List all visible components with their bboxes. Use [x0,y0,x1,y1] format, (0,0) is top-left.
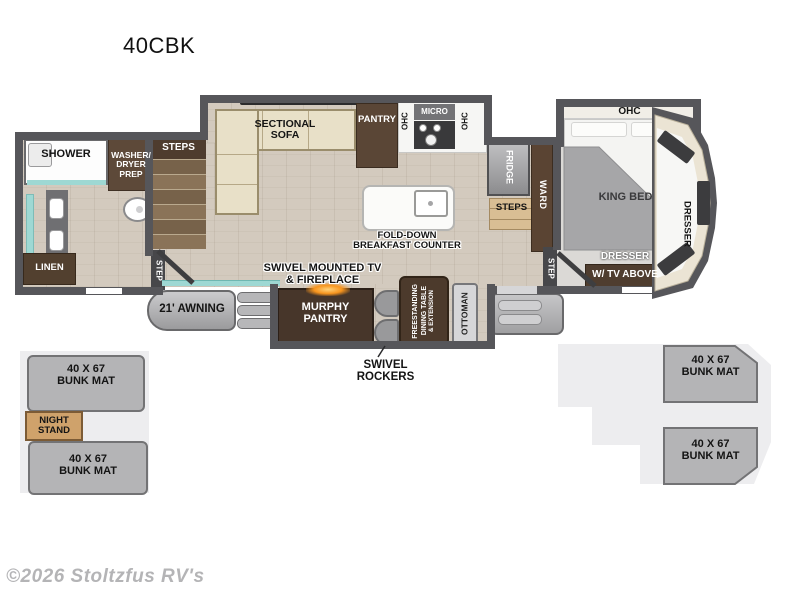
washer-dryer-label: WASHER/DRYERPREP [108,145,154,185]
bunk-mat-label: 40 X 67BUNK MAT [27,362,145,390]
breakfast-counter-label: FOLD-DOWNBREAKFAST COUNTER [337,229,477,253]
fridge-label: FRIDGE [487,139,530,196]
bunk-mat-label: 40 X 67BUNK MAT [664,353,757,381]
cap-dresser-label: DRESSER [679,193,694,255]
ottoman-label: OTTOMAN [452,283,478,345]
dresser-tv-label-line1: DRESSER [583,252,667,263]
linen-label: LINEN [23,258,76,278]
bunk-mat-label: 40 X 67BUNK MAT [28,452,148,480]
ohc-right-label: OHC [459,104,473,138]
rockers-pointer-line [378,346,385,357]
staircase-label: STEPS [151,139,206,157]
dining-table-label: FREESTANDING DINING TABLE & EXTENSION [399,276,449,346]
awning-label: 21' AWNING [150,301,234,317]
wardrobe-label: WARD [531,138,553,252]
sectional-sofa-label: SECTIONALSOFA [225,118,345,142]
murphy-pantry-label: MURPHYPANTRY [277,300,374,328]
dresser-tv-label-line2: W/ TV ABOVE [585,268,665,282]
window-icon [697,181,710,225]
microwave-label: MICRO [414,104,455,120]
pantry-label: PANTRY [356,113,398,127]
kitchen-steps-label: STEPS [489,200,534,216]
model-title: 40CBK [123,33,195,59]
ohc-left-label: OHC [399,104,413,138]
floorplan-canvas: 40CBK SHOWER WASHER/DRYERPREP STEPS STEP… [0,0,800,600]
bunk-mat-label: 40 X 67BUNK MAT [664,437,757,465]
swivel-rockers-label: SWIVELROCKERS [343,357,428,385]
night-stand-label: NIGHTSTAND [25,414,83,438]
king-bed-label: KING BED [568,191,683,205]
shower-label: SHOWER [30,148,102,162]
step-label-bath: STEP [151,250,165,290]
copyright-watermark: ©2026 Stoltzfus RV's [6,566,205,588]
bedroom-ohc-label: OHC [592,105,667,119]
step-label-bedroom: STEP [543,248,557,288]
tv-fireplace-label: SWIVEL MOUNTED TV& FIREPLACE [250,263,395,287]
